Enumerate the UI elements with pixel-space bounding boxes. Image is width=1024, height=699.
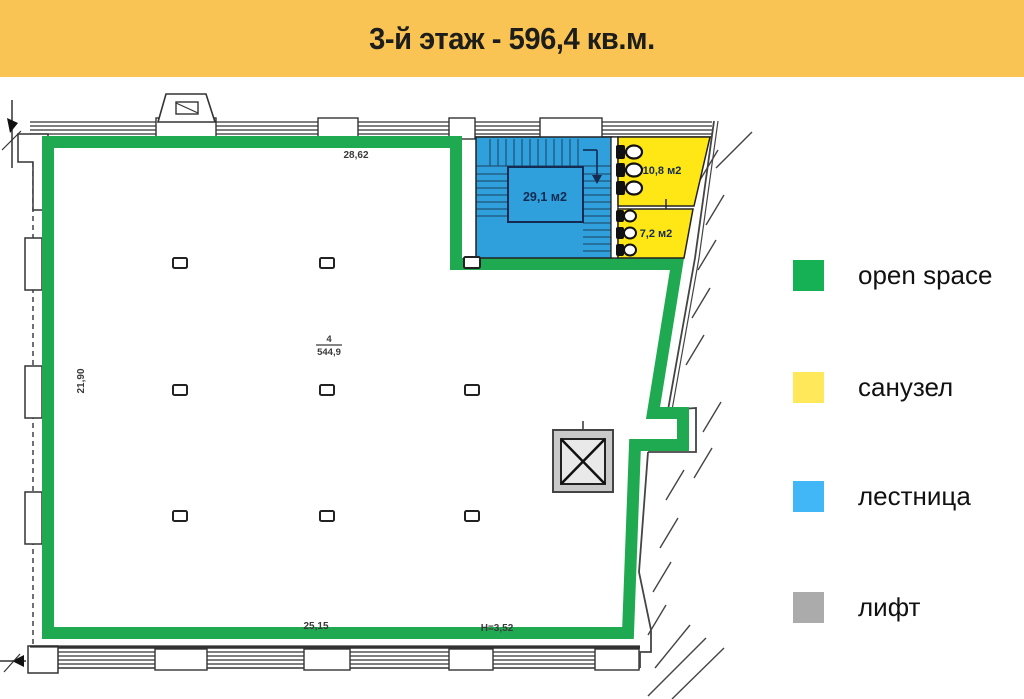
legend-item-stairs: лестница [793,481,971,512]
elevator-swatch [793,592,824,623]
legend-item-elevator: лифт [793,592,920,623]
room-number: 4 [326,334,332,345]
roof-bay [158,94,215,122]
column-grid [173,257,480,521]
page-title: 3-й этаж - 596,4 кв.м. [369,21,655,57]
legend-item-wc: санузел [793,372,953,403]
legend-label: лифт [858,592,920,623]
dim-bottom: 25,15 [303,621,328,632]
dim-left: 21,90 [76,368,87,393]
dim-height: H=3,52 [481,623,514,634]
section-mark-bottom-left [0,654,26,672]
room-area: 544,9 [317,347,341,358]
legend-item-open-space: open space [793,260,992,291]
legend-label: open space [858,260,992,291]
floor-plan: 29,1 м2 10,8 м2 7,2 м2 [0,77,768,699]
wc-small-area-label: 7,2 м2 [640,228,673,240]
wc-rooms: 10,8 м2 7,2 м2 [616,137,710,258]
stairs-swatch [793,481,824,512]
wc-large-area-label: 10,8 м2 [643,165,682,177]
room-number-fraction: 4 544,9 [316,334,342,358]
wc-swatch [793,372,824,403]
header-banner: 3-й этаж - 596,4 кв.м. [0,0,1024,77]
dimension-labels: 28,62 21,90 25,15 H=3,52 4 544,9 [76,150,514,634]
legend-label: санузел [858,372,953,403]
open-space-swatch [793,260,824,291]
stairs-area-label: 29,1 м2 [523,190,567,204]
legend: open space санузел лестница лифт [780,77,1024,699]
dim-top: 28,62 [343,150,368,161]
elevator [553,421,613,492]
legend-label: лестница [858,481,971,512]
staircase: 29,1 м2 [476,137,618,258]
